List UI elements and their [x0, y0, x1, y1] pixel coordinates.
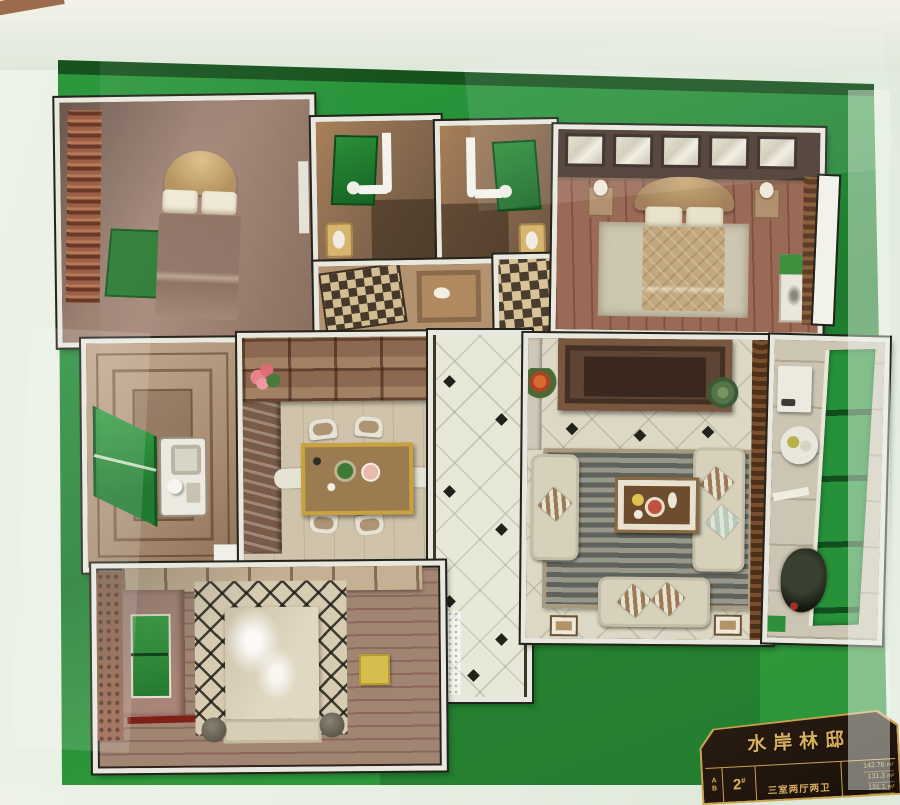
table-item [787, 436, 799, 448]
bed-footboard [223, 719, 321, 744]
tray-item [634, 510, 643, 519]
room-dining [237, 331, 447, 573]
dining-chair [354, 416, 383, 438]
coffee-table [615, 477, 699, 534]
sofa-right [692, 447, 745, 571]
toilet [326, 222, 354, 257]
sofa-cushion [651, 582, 685, 616]
stove-burner [186, 483, 200, 503]
checker-mat [320, 265, 405, 331]
bed-pillow [645, 206, 682, 228]
nightstand-lamp [753, 188, 780, 219]
sofa-cushion [700, 467, 734, 501]
shower-screen [357, 185, 387, 195]
master-bed [642, 176, 726, 311]
tray-item [632, 494, 644, 506]
sink-basin [171, 445, 201, 475]
bed-blanket [642, 226, 725, 311]
plaque-block-labels: A B [705, 768, 724, 803]
side-table [716, 617, 740, 634]
bedroom2-bench [298, 161, 309, 233]
sofa-bottom [598, 577, 710, 628]
table-cup [313, 457, 321, 465]
room-bedroom-third [91, 560, 447, 773]
tray-item [668, 492, 677, 508]
bedroom3-yellow-stool [359, 654, 390, 685]
dining-chair [308, 418, 338, 441]
corner-plant [528, 368, 558, 402]
sofa-cushion [706, 505, 740, 539]
bed-pillow [162, 189, 198, 213]
bed-blanket [155, 213, 241, 320]
table-cup [327, 483, 335, 491]
glass-reflection [9, 327, 151, 753]
pet-bed-inset [416, 270, 481, 323]
room-bedroom-secondary [54, 94, 317, 348]
photo-architectural-model: { "plaque": { "title": "水岸林邸", "row_labe… [0, 0, 900, 785]
shower-screen [382, 133, 392, 193]
glass-reflection [848, 90, 890, 790]
plaque-layout-label: 三室两厅两卫 [755, 762, 843, 800]
bedroom2-wardrobe [66, 110, 102, 302]
bedroom2-bed [153, 149, 246, 324]
flower-arrangement [250, 364, 284, 398]
bathroom1-shower-glass [331, 135, 379, 206]
pouf [201, 717, 226, 742]
room-living [521, 333, 776, 645]
bed-pillow [201, 191, 237, 215]
sofa-cushion [538, 487, 572, 521]
tray-item [648, 500, 662, 514]
dining-table [301, 442, 414, 515]
bed-pillow [686, 207, 723, 229]
corner-plant [706, 376, 740, 410]
sofa-cushion [617, 584, 651, 618]
sofa-left [530, 454, 579, 560]
room-bathroom-1 [311, 115, 444, 271]
dining-chair [274, 468, 305, 489]
side-table [552, 617, 576, 634]
table-item [800, 440, 811, 451]
table-plate [363, 465, 378, 480]
block-label-b: B [712, 785, 717, 793]
table-plant [337, 463, 353, 479]
faucet [167, 479, 182, 494]
pouf [319, 712, 344, 737]
balcony-green-patch [767, 616, 785, 632]
kitchen-sink-unit [161, 439, 206, 515]
washing-machine [777, 366, 812, 413]
plaque-unit-number: 2# [722, 766, 757, 802]
